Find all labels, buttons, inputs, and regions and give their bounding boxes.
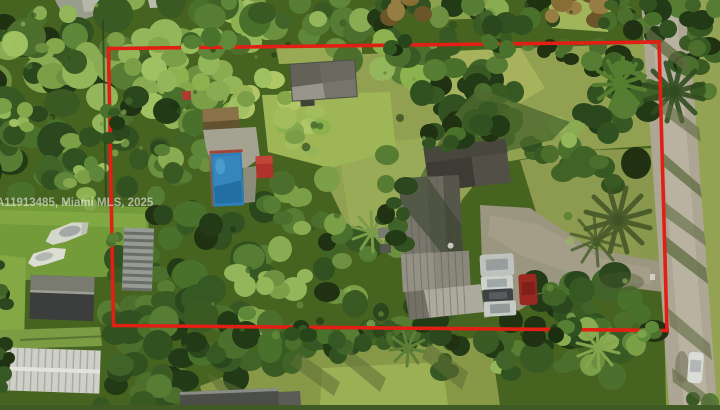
- svg-text:A11913485, Miami MLS, 2025: A11913485, Miami MLS, 2025: [0, 197, 154, 209]
